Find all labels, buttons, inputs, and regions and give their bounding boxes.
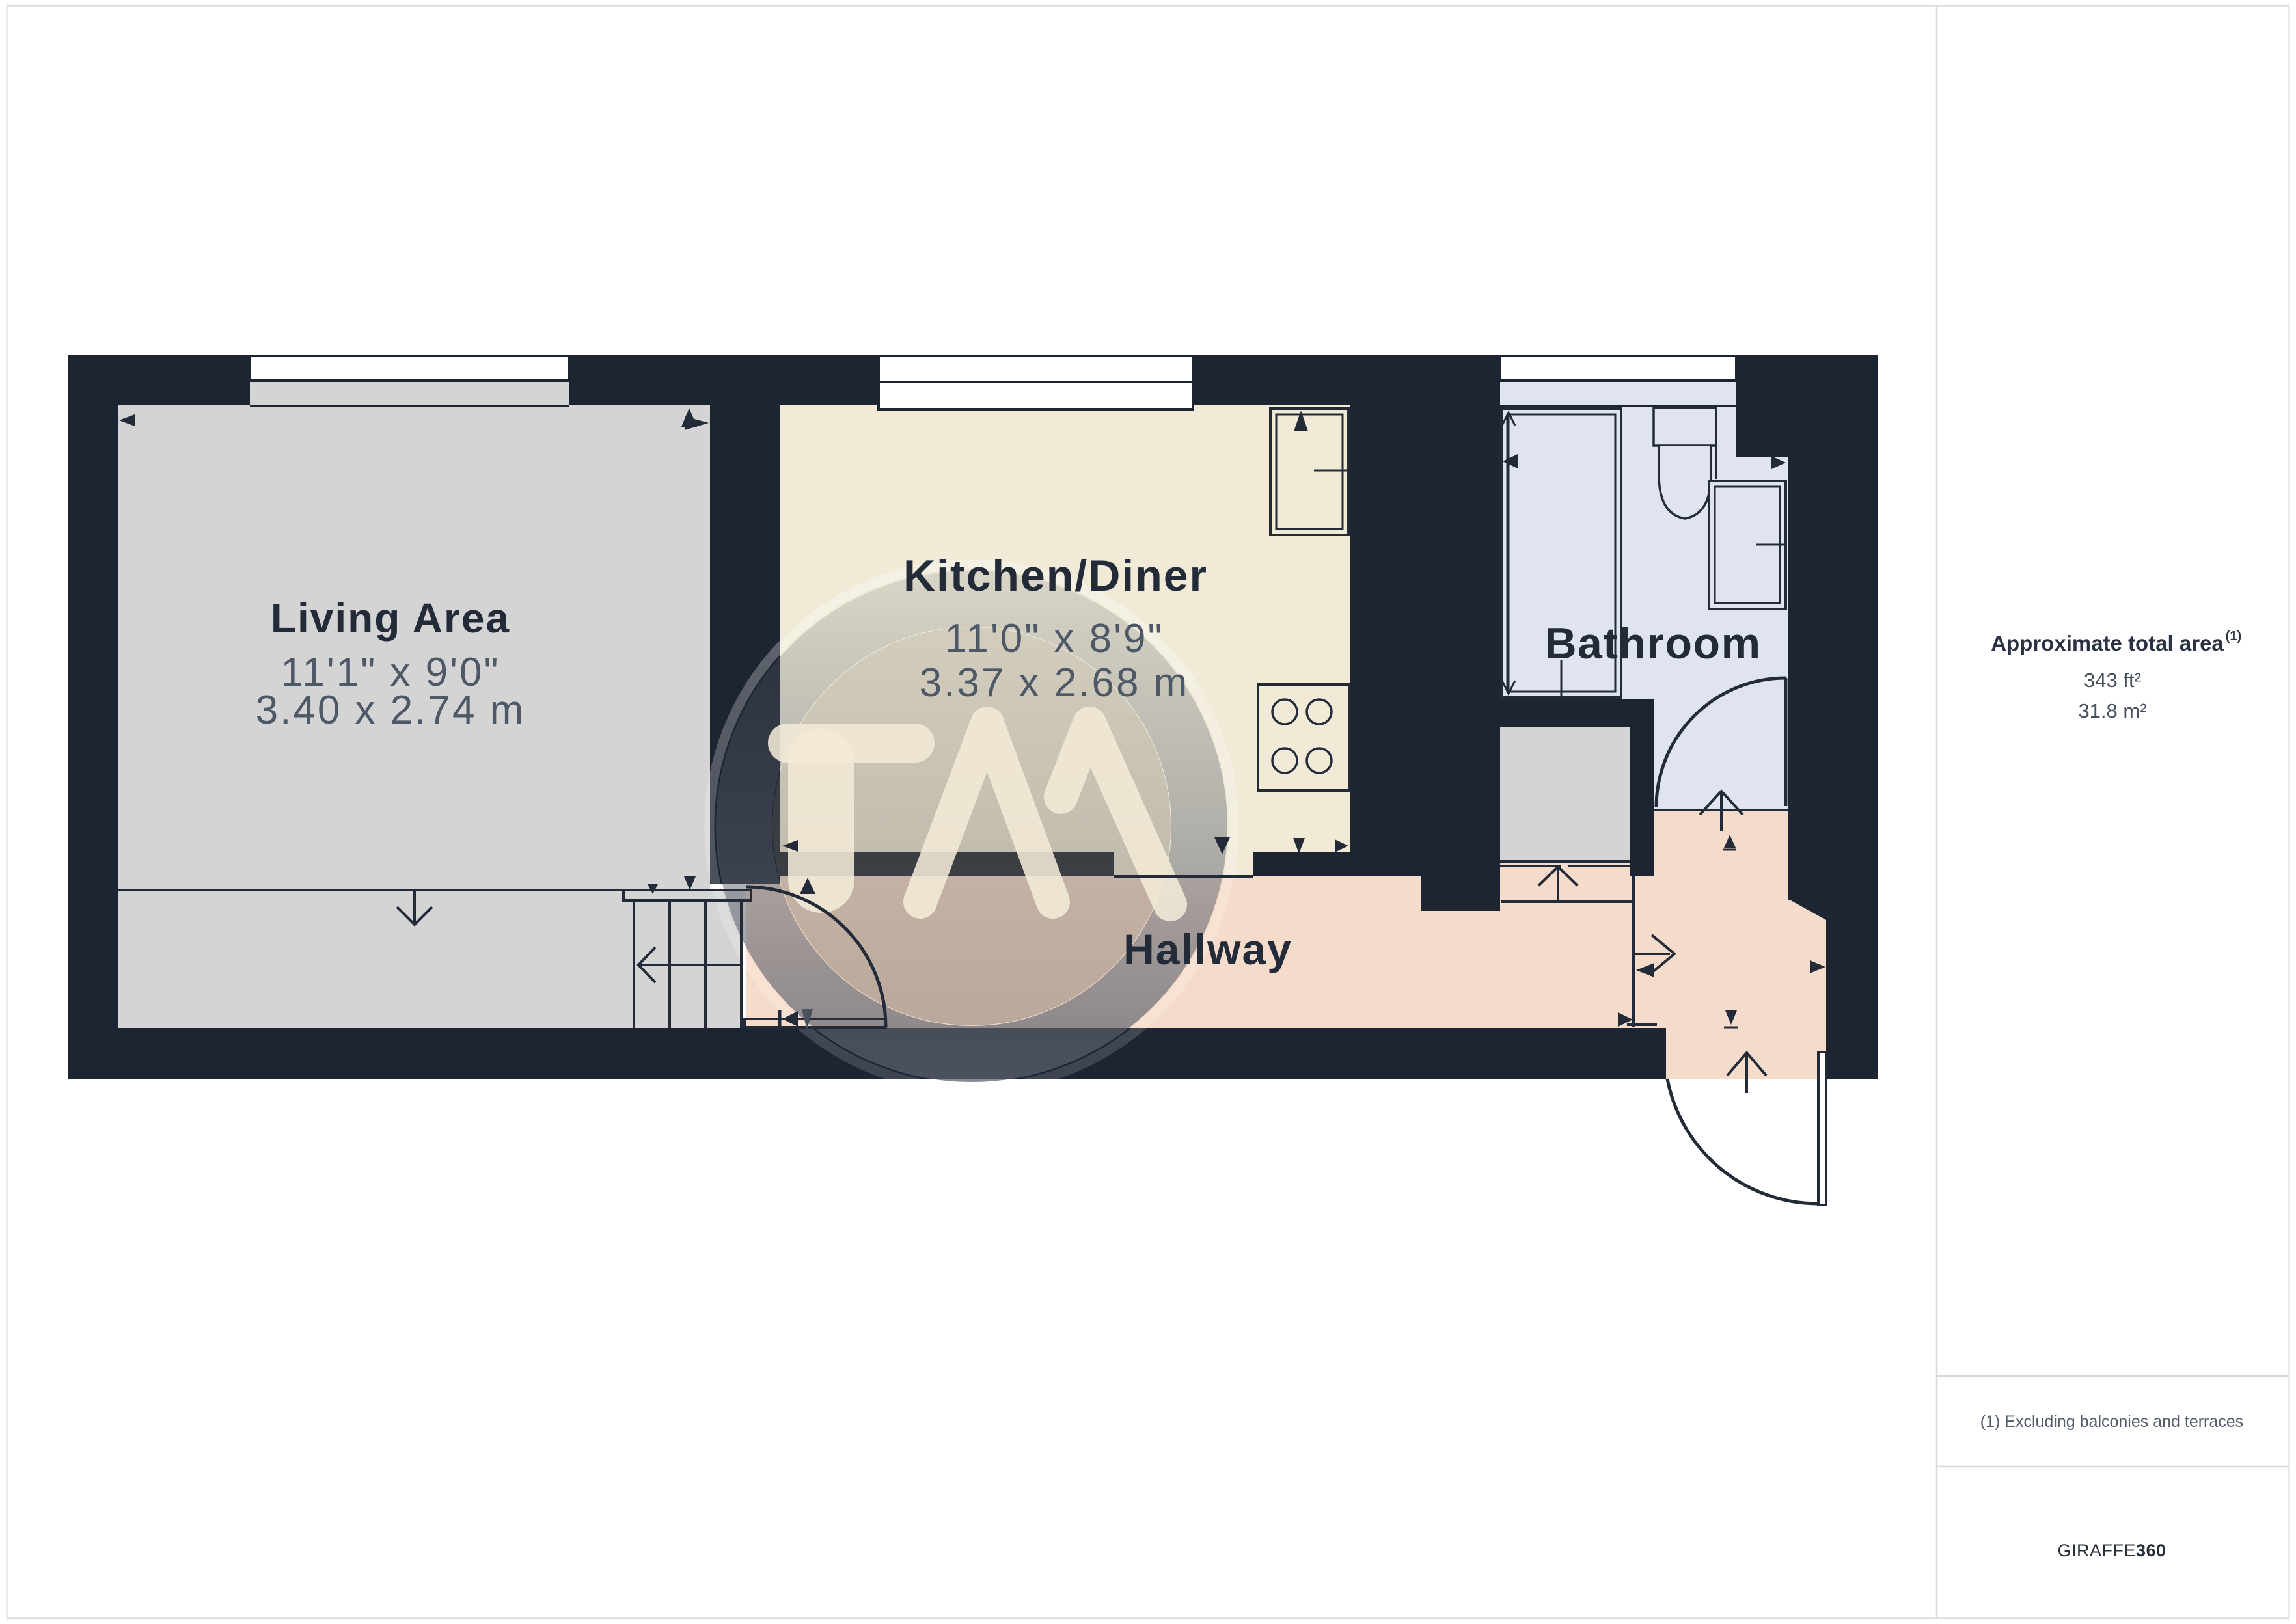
svg-text:Hallway: Hallway: [1123, 925, 1292, 973]
svg-text:3.37 x 2.68 m: 3.37 x 2.68 m: [920, 660, 1190, 705]
svg-text:11'0" x 8'9": 11'0" x 8'9": [945, 616, 1164, 661]
svg-text:343 ft²: 343 ft²: [2084, 669, 2141, 692]
svg-text:GIRAFFE360: GIRAFFE360: [2057, 1541, 2166, 1560]
svg-text:3.40 x 2.74 m: 3.40 x 2.74 m: [256, 688, 526, 733]
svg-text:Approximate total area: Approximate total area: [1991, 631, 2224, 655]
svg-text:Living Area: Living Area: [271, 595, 510, 642]
svg-text:(1): (1): [2226, 629, 2241, 643]
svg-text:Kitchen/Diner: Kitchen/Diner: [903, 551, 1208, 601]
svg-text:Bathroom: Bathroom: [1544, 619, 1761, 668]
svg-text:31.8 m²: 31.8 m²: [2078, 699, 2146, 722]
svg-text:(1) Excluding balconies and te: (1) Excluding balconies and terraces: [1980, 1413, 2243, 1431]
